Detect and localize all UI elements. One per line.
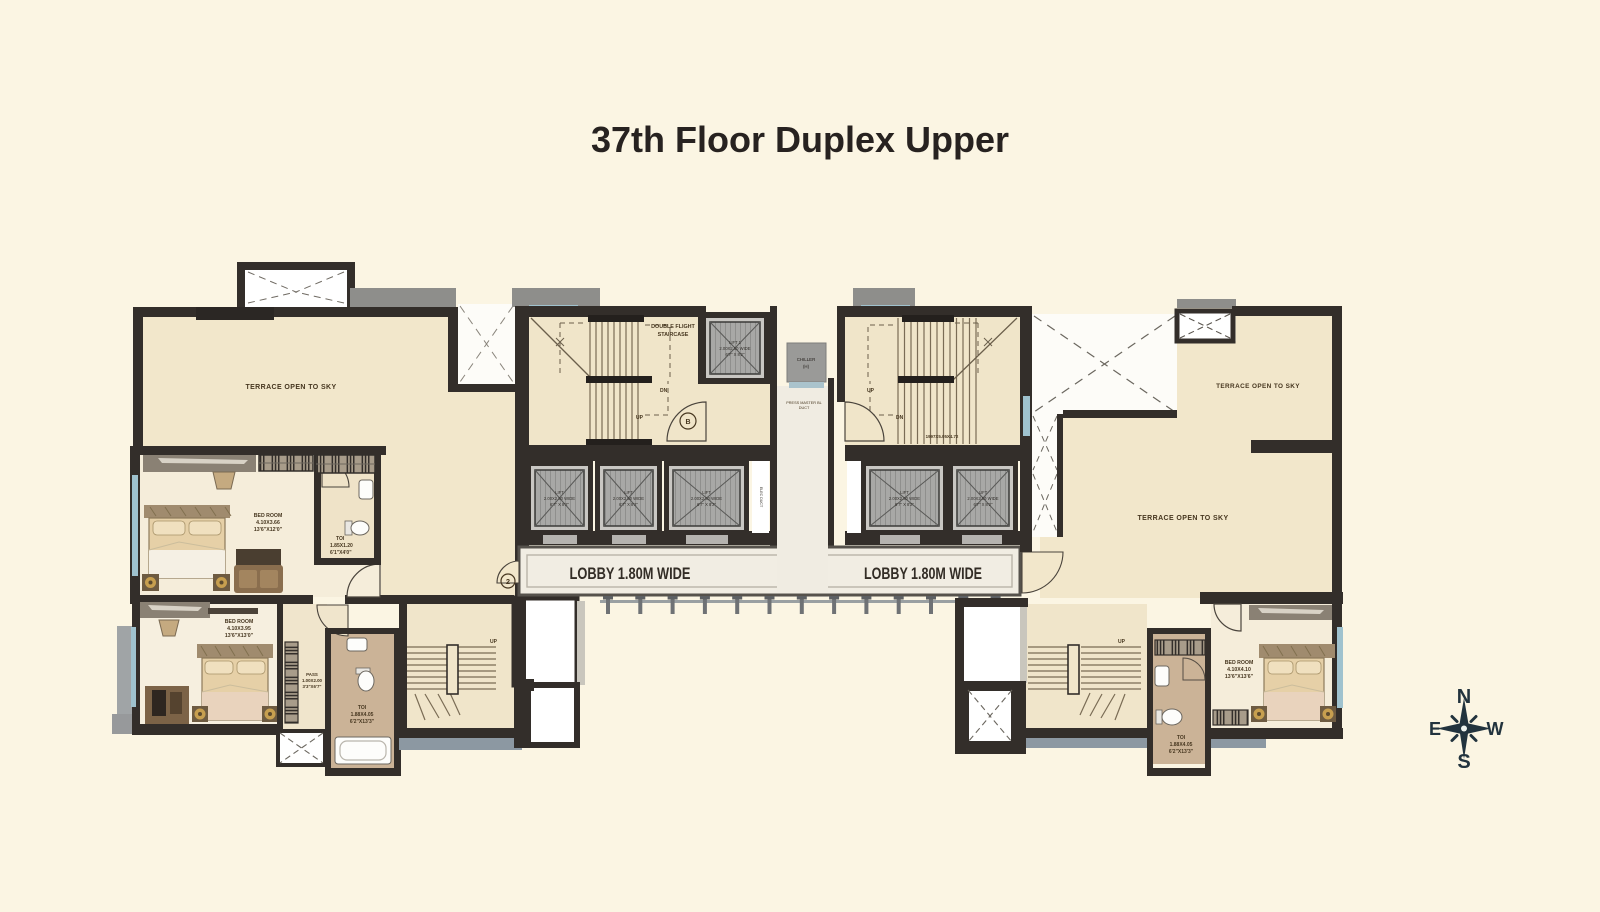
svg-text:(H): (H) bbox=[803, 364, 810, 369]
svg-text:PRESS MASTER BL: PRESS MASTER BL bbox=[786, 401, 821, 405]
svg-text:1.85X1.20: 1.85X1.20 bbox=[330, 543, 353, 549]
svg-text:UP: UP bbox=[636, 415, 644, 421]
svg-text:2.00X2.50 WIDE: 2.00X2.50 WIDE bbox=[691, 496, 722, 501]
svg-text:CHILLER: CHILLER bbox=[797, 357, 816, 362]
svg-text:TERRACE OPEN TO SKY: TERRACE OPEN TO SKY bbox=[1216, 383, 1300, 390]
svg-text:DOUBLE FLIGHT: DOUBLE FLIGHT bbox=[651, 324, 695, 330]
svg-text:2.00X2.50 WIDE: 2.00X2.50 WIDE bbox=[889, 496, 920, 501]
svg-text:1.00X2.00: 1.00X2.00 bbox=[302, 678, 323, 683]
svg-text:6'1"X4'0": 6'1"X4'0" bbox=[330, 550, 352, 556]
svg-text:TERRACE OPEN TO SKY: TERRACE OPEN TO SKY bbox=[1137, 515, 1228, 522]
svg-text:37th Floor Duplex Upper: 37th Floor Duplex Upper bbox=[591, 119, 1009, 160]
svg-text:UP: UP bbox=[1118, 639, 1126, 645]
svg-text:2.00X2.50 WIDE: 2.00X2.50 WIDE bbox=[719, 346, 750, 351]
svg-text:1.88X4.05: 1.88X4.05 bbox=[351, 712, 374, 718]
svg-text:2.00X2.50 WIDE: 2.00X2.50 WIDE bbox=[544, 496, 575, 501]
svg-text:LIFT: LIFT bbox=[555, 490, 564, 495]
svg-text:4.10X4.10: 4.10X4.10 bbox=[1227, 667, 1251, 673]
svg-text:4.10X3.95: 4.10X3.95 bbox=[227, 626, 251, 632]
svg-text:TOI: TOI bbox=[1177, 735, 1186, 741]
svg-text:6'2"X13'3": 6'2"X13'3" bbox=[350, 719, 375, 725]
svg-text:B: B bbox=[685, 419, 690, 426]
svg-text:6'7" X 8'2": 6'7" X 8'2" bbox=[697, 502, 717, 507]
svg-text:LIFT: LIFT bbox=[624, 490, 633, 495]
svg-text:1.88X4.05: 1.88X4.05 bbox=[1170, 742, 1193, 748]
svg-text:6'7" X 8'2": 6'7" X 8'2" bbox=[973, 502, 993, 507]
svg-text:2: 2 bbox=[506, 577, 510, 586]
svg-text:W: W bbox=[1487, 719, 1504, 739]
svg-text:S: S bbox=[1457, 751, 1470, 773]
svg-text:PASS: PASS bbox=[306, 672, 318, 677]
svg-text:6'7" X 8'2": 6'7" X 8'2" bbox=[550, 502, 570, 507]
svg-text:13'6"X12'0": 13'6"X12'0" bbox=[254, 527, 283, 533]
svg-text:E: E bbox=[1429, 719, 1441, 739]
svg-text:3'3"X6'7": 3'3"X6'7" bbox=[303, 684, 322, 689]
svg-text:TOI: TOI bbox=[358, 705, 367, 711]
svg-text:N: N bbox=[1457, 686, 1471, 708]
svg-text:LIFT: LIFT bbox=[702, 490, 711, 495]
svg-text:STAIRCASE: STAIRCASE bbox=[658, 332, 689, 338]
svg-text:DN: DN bbox=[896, 415, 904, 421]
svg-text:LOBBY 1.80M WIDE: LOBBY 1.80M WIDE bbox=[864, 565, 982, 583]
svg-text:2.00X2.50 WIDE: 2.00X2.50 WIDE bbox=[613, 496, 644, 501]
svg-text:6'7" X 8'2": 6'7" X 8'2" bbox=[725, 352, 745, 357]
svg-text:LIFT 1: LIFT 1 bbox=[729, 340, 742, 345]
svg-text:DUCT: DUCT bbox=[799, 406, 810, 410]
svg-text:13'6"X13'0": 13'6"X13'0" bbox=[225, 633, 254, 639]
svg-text:BED ROOM: BED ROOM bbox=[254, 513, 283, 519]
svg-text:TOI: TOI bbox=[336, 536, 345, 542]
svg-text:TERRACE OPEN TO SKY: TERRACE OPEN TO SKY bbox=[245, 384, 336, 391]
svg-text:4.10X3.66: 4.10X3.66 bbox=[256, 520, 280, 526]
svg-text:6'7" X 8'2": 6'7" X 8'2" bbox=[895, 502, 915, 507]
svg-text:6'2"X13'3": 6'2"X13'3" bbox=[1169, 749, 1194, 755]
svg-text:6'7" X 8'2": 6'7" X 8'2" bbox=[619, 502, 639, 507]
svg-text:DN: DN bbox=[660, 388, 668, 394]
svg-text:UP: UP bbox=[867, 388, 875, 394]
svg-text:LOBBY 1.80M WIDE: LOBBY 1.80M WIDE bbox=[570, 565, 691, 583]
svg-text:LIFT: LIFT bbox=[979, 490, 988, 495]
svg-text:LIFT: LIFT bbox=[900, 490, 909, 495]
svg-text:UP: UP bbox=[490, 639, 498, 645]
svg-text:13'6"X13'6": 13'6"X13'6" bbox=[1225, 674, 1254, 680]
svg-text:ELEC DUCT: ELEC DUCT bbox=[759, 487, 763, 508]
svg-text:BED ROOM: BED ROOM bbox=[1225, 660, 1254, 666]
svg-text:1997X5.05X4.72: 1997X5.05X4.72 bbox=[926, 434, 959, 439]
svg-text:2.00X2.50 WIDE: 2.00X2.50 WIDE bbox=[967, 496, 998, 501]
svg-text:BED ROOM: BED ROOM bbox=[225, 619, 254, 625]
